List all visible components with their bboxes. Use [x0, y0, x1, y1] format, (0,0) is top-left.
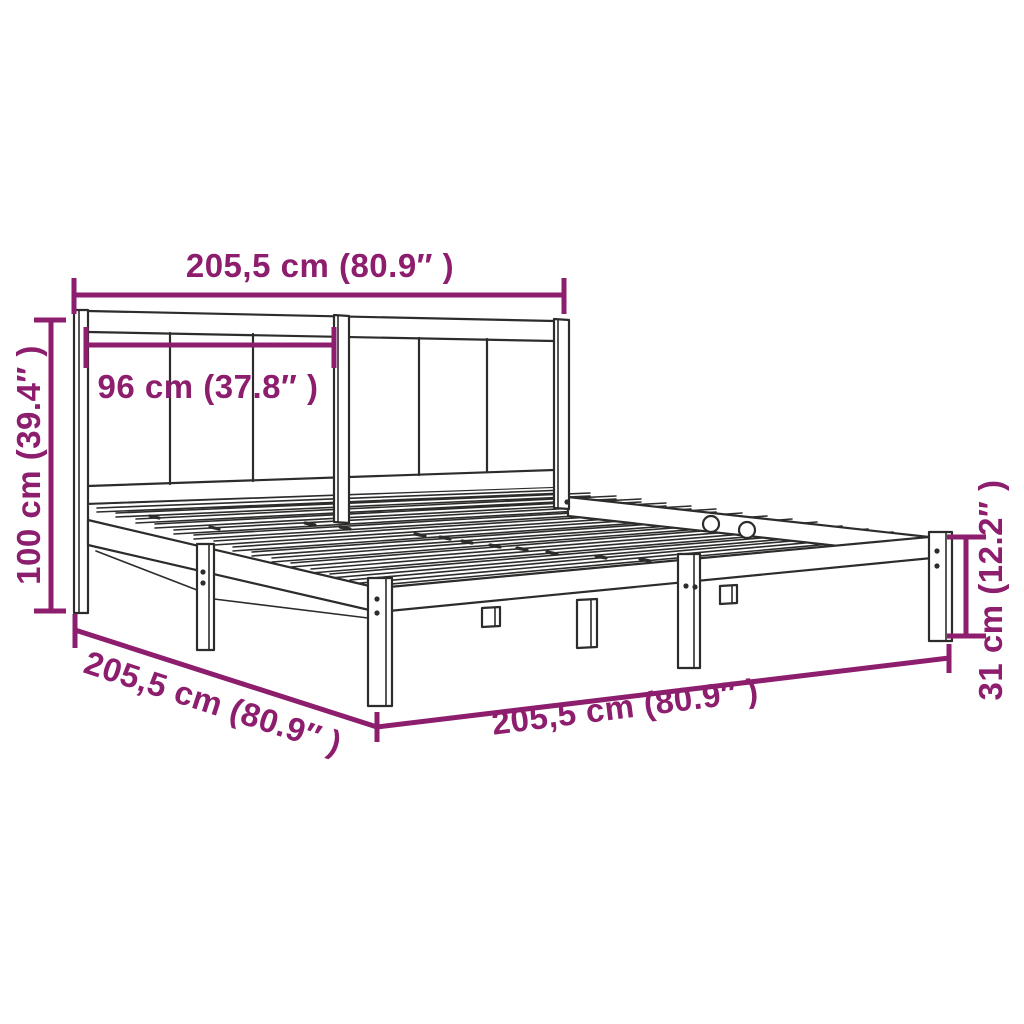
screw-dot	[374, 610, 379, 615]
dim-label-headboard-height: 100 cm (39.4″ )	[10, 345, 48, 585]
screw-dot	[564, 499, 569, 504]
headboard-right-post	[554, 319, 569, 509]
rail-hook-2	[739, 522, 755, 538]
rail-hook-1	[703, 516, 719, 532]
screw-dot	[200, 569, 205, 574]
headboard-top-edge	[88, 311, 554, 321]
bed-frame-drawing	[0, 0, 1024, 1024]
screw-dot	[934, 563, 939, 568]
screw-dot	[374, 596, 379, 601]
left-middle-leg	[197, 544, 214, 650]
screw-dot	[200, 580, 205, 585]
diagram-canvas: 205,5 cm (80.9″ ) 96 cm (37.8″ ) 100 cm …	[0, 0, 1024, 1024]
screw-dot	[692, 584, 697, 589]
far-leg-stub-3	[720, 585, 737, 604]
front-middle-leg	[678, 554, 700, 668]
headboard-panel-dividers	[170, 333, 487, 484]
screw-dot	[683, 583, 688, 588]
dim-label-headboard-width: 205,5 cm (80.9″ )	[186, 247, 454, 285]
far-leg-stub-2	[577, 599, 597, 648]
far-leg-stub-1	[482, 607, 500, 627]
dim-label-panel-width: 96 cm (37.8″ )	[98, 368, 319, 406]
screw-dot	[934, 548, 939, 553]
front-right-leg	[929, 532, 952, 641]
dim-label-base-height: 31 cm (12.2″ )	[972, 480, 1010, 701]
headboard-bottomrail-top	[88, 470, 554, 486]
headboard-toprail-line	[88, 332, 554, 341]
front-left-leg	[368, 578, 392, 706]
